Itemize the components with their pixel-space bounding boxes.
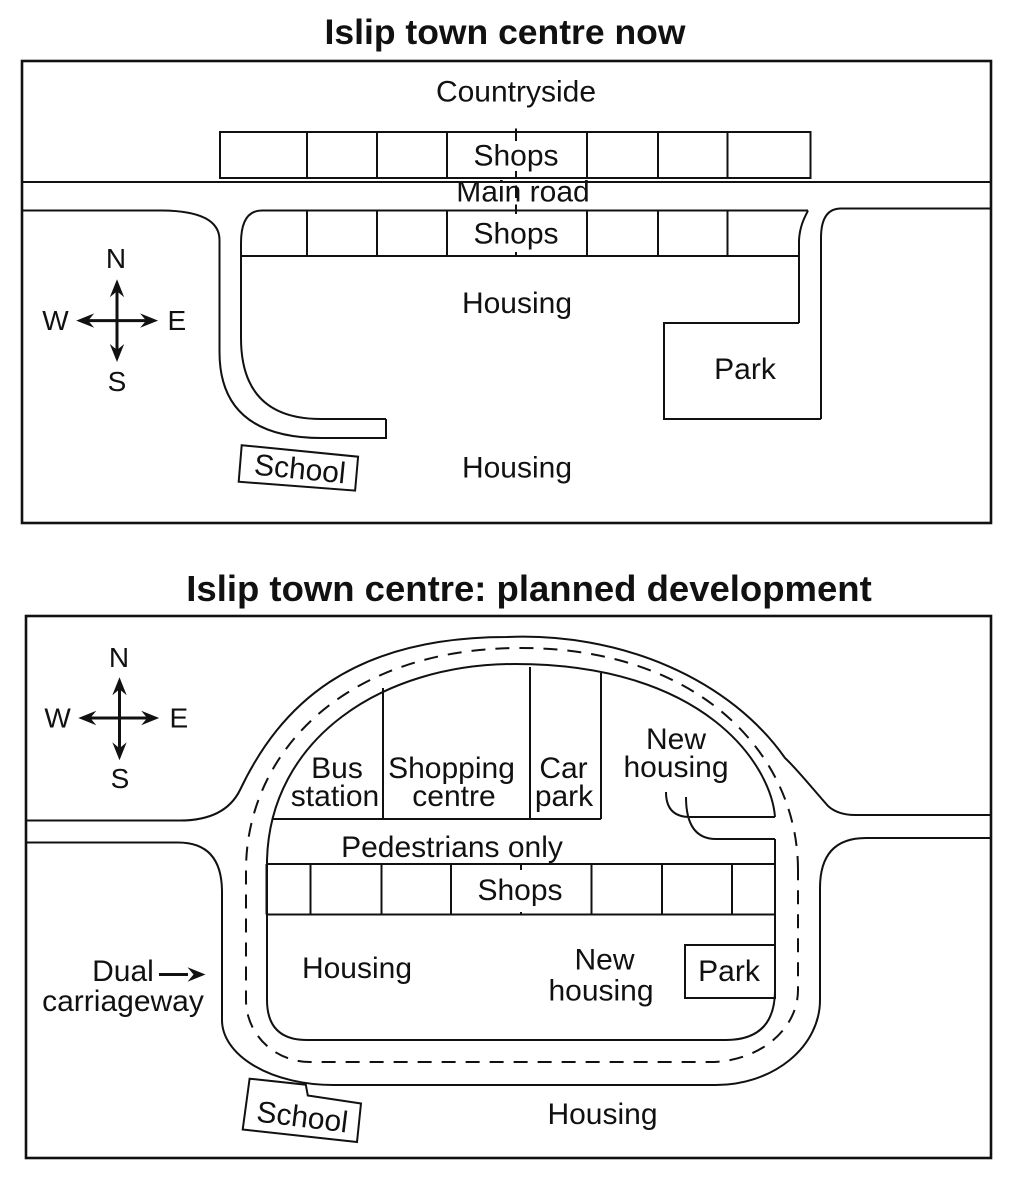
svg-text:Pedestrians only: Pedestrians only xyxy=(341,831,563,864)
svg-text:W: W xyxy=(44,703,71,734)
svg-text:Shops: Shops xyxy=(473,218,558,251)
svg-text:Islip town centre: planned dev: Islip town centre: planned development xyxy=(186,568,871,609)
svg-text:housing: housing xyxy=(548,975,653,1008)
svg-text:Dual: Dual xyxy=(92,955,154,988)
svg-text:Islip town centre now: Islip town centre now xyxy=(325,12,686,52)
svg-text:carriageway: carriageway xyxy=(42,985,204,1018)
svg-text:Housing: Housing xyxy=(302,952,412,985)
svg-text:N: N xyxy=(106,243,126,274)
svg-text:Shops: Shops xyxy=(477,874,562,907)
svg-text:Shops: Shops xyxy=(473,140,558,173)
svg-text:New: New xyxy=(574,944,634,977)
svg-text:centre: centre xyxy=(412,780,495,813)
svg-text:station: station xyxy=(291,780,379,813)
svg-text:Main road: Main road xyxy=(456,176,589,209)
svg-text:W: W xyxy=(42,305,69,336)
svg-text:Park: Park xyxy=(698,955,761,988)
svg-text:housing: housing xyxy=(623,751,728,784)
svg-text:Countryside: Countryside xyxy=(436,76,596,109)
svg-text:park: park xyxy=(535,780,594,813)
svg-text:Housing: Housing xyxy=(547,1098,657,1131)
svg-text:Housing: Housing xyxy=(462,287,572,320)
svg-text:S: S xyxy=(111,763,130,794)
svg-text:S: S xyxy=(108,366,127,397)
svg-text:N: N xyxy=(109,642,129,673)
svg-text:Park: Park xyxy=(714,353,777,386)
svg-text:E: E xyxy=(167,305,186,336)
svg-text:Housing: Housing xyxy=(462,452,572,485)
svg-text:E: E xyxy=(170,703,189,734)
